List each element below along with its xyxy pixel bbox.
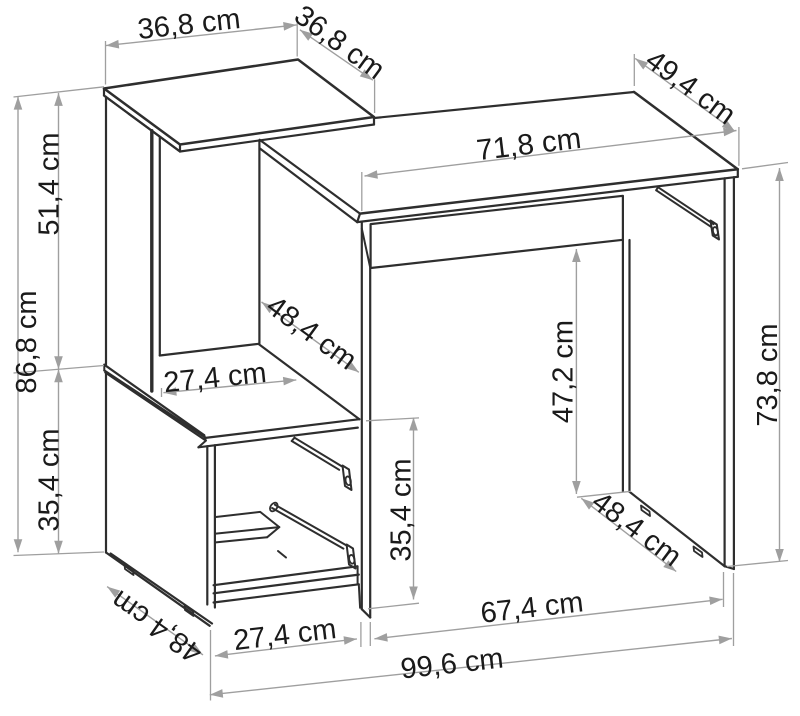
svg-text:73,8 cm: 73,8 cm <box>752 323 784 426</box>
svg-text:51,4 cm: 51,4 cm <box>34 132 66 235</box>
svg-text:35,4 cm: 35,4 cm <box>34 428 66 531</box>
svg-text:47,2 cm: 47,2 cm <box>548 320 580 423</box>
svg-text:35,4 cm: 35,4 cm <box>386 458 418 561</box>
svg-text:86,8 cm: 86,8 cm <box>11 290 43 393</box>
